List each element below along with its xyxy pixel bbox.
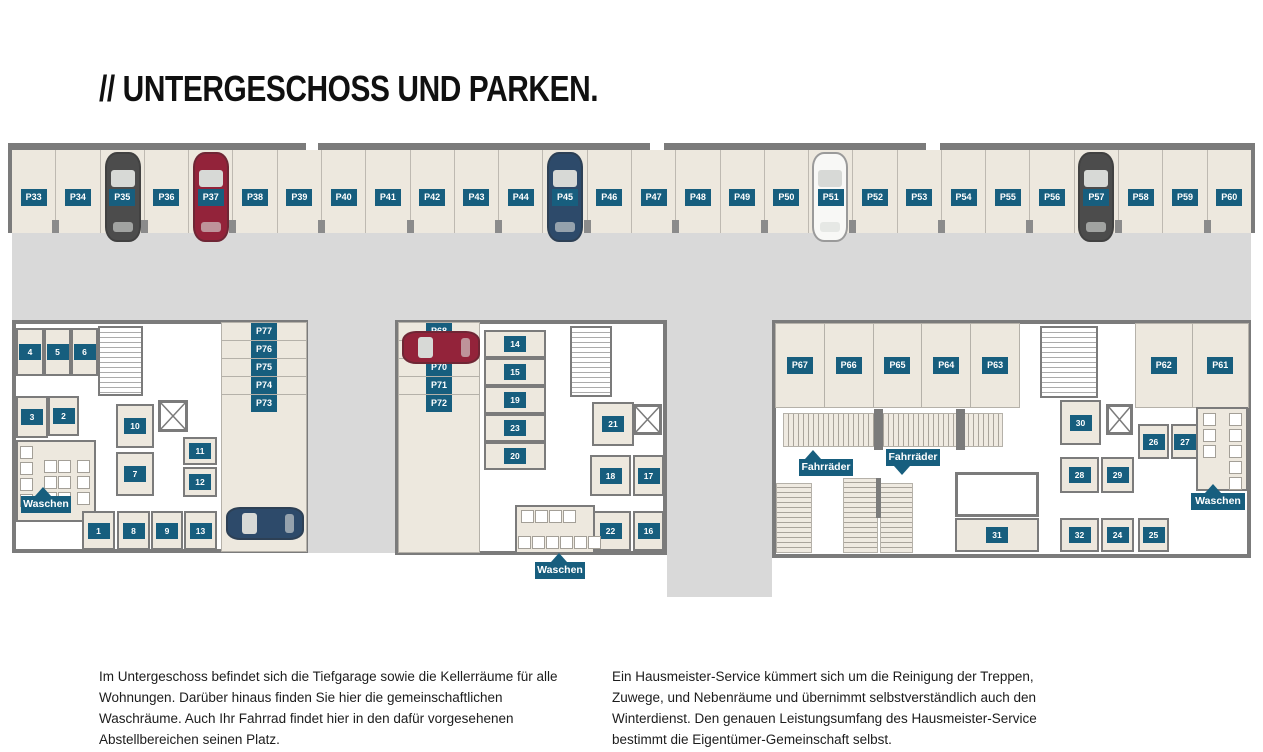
cellar-room: 9 (151, 511, 183, 550)
room-number: 28 (1069, 467, 1091, 483)
wall-notch (306, 143, 318, 150)
parking-spot-label: P75 (251, 359, 277, 376)
room-number: 18 (600, 468, 622, 484)
parking-spot: P38 (233, 150, 277, 233)
washing-machines (518, 536, 599, 549)
room-number: 9 (156, 523, 178, 539)
parking-spot: P33 (12, 150, 56, 233)
cellar-room: 27 (1171, 424, 1199, 459)
parking-spot-label: P73 (251, 395, 277, 412)
room-number: 32 (1069, 527, 1091, 543)
parking-spot: P64 (921, 324, 970, 407)
parking-spot: P72 (399, 394, 479, 412)
parking-spot: P53 (898, 150, 942, 233)
elevator-icon (158, 400, 188, 432)
parking-spot: P39 (278, 150, 322, 233)
cellar-room: 21 (592, 402, 634, 446)
parking-spot: P41 (366, 150, 410, 233)
waschen-callout-left: Waschen (21, 496, 71, 513)
waschen-label: Waschen (537, 564, 583, 576)
driveway-lane-right (667, 320, 772, 597)
parking-spot-label: P47 (641, 189, 667, 206)
car-p73 (226, 507, 304, 540)
column-post (956, 409, 965, 450)
room-number: 6 (74, 344, 96, 360)
parking-spot: P66 (824, 324, 873, 407)
cellar-room: 12 (183, 467, 217, 497)
parking-spot: P67 (776, 324, 824, 407)
arrow-down-icon (894, 466, 910, 475)
parking-spot: P59 (1163, 150, 1207, 233)
car-windshield (1084, 170, 1108, 187)
parking-spot-label: P41 (375, 189, 401, 206)
bike-rack (880, 483, 913, 553)
cellar-room: 23 (484, 414, 546, 442)
cellar-room: 3 (16, 396, 48, 438)
waschen-label: Waschen (23, 498, 69, 510)
parking-spot: P58 (1119, 150, 1163, 233)
cellar-room: 18 (590, 455, 631, 496)
parking-spot: P71 (399, 376, 479, 394)
parking-pair-right: P62 P61 (1135, 323, 1249, 408)
parking-spot: P52 (853, 150, 897, 233)
room-number: 20 (504, 448, 526, 464)
parking-spot-label: P77 (251, 323, 277, 340)
parking-spot: P76 (222, 340, 306, 358)
parking-spot: P48 (676, 150, 720, 233)
parking-spot-label: P35 (109, 189, 135, 206)
parking-spot-label: P38 (242, 189, 268, 206)
parking-spot-label: P60 (1216, 189, 1242, 206)
cellar-room: 26 (1138, 424, 1169, 459)
parking-spot-label: P36 (153, 189, 179, 206)
parking-spot-label: P46 (596, 189, 622, 206)
wall-notch (650, 143, 664, 150)
cellar-room: 8 (117, 511, 150, 550)
washing-machines (1203, 413, 1214, 458)
parking-spot: P62 (1136, 324, 1192, 407)
parking-spot: P40 (322, 150, 366, 233)
staircase (570, 326, 612, 397)
cellar-room: 10 (116, 404, 154, 448)
parking-spot: P47 (632, 150, 676, 233)
parking-spot: P42 (411, 150, 455, 233)
washing-machines (77, 460, 88, 505)
bike-rack (783, 413, 1003, 447)
room-number: 11 (189, 443, 211, 459)
parking-spot-label: P39 (286, 189, 312, 206)
parking-spot: P73 (222, 394, 306, 412)
arrow-up-icon (551, 553, 567, 562)
parking-row-right: P67 P66 P65 P64 P63 (775, 323, 1020, 408)
room-number: 27 (1174, 434, 1196, 450)
utility-room (955, 472, 1039, 517)
cellar-room: 31 (955, 518, 1039, 552)
parking-spot-label: P62 (1151, 357, 1177, 374)
cellar-room: 13 (184, 511, 217, 550)
cellar-room: 32 (1060, 518, 1099, 552)
room-number: 16 (638, 523, 660, 539)
parking-spot-label: P40 (331, 189, 357, 206)
parking-spot-label: P34 (65, 189, 91, 206)
washing-machines (1229, 413, 1240, 490)
parking-spot-label: P57 (1083, 189, 1109, 206)
fahrraeder-label: Fahrräder (801, 461, 850, 473)
page-title: // UNTERGESCHOSS UND PARKEN. (99, 68, 598, 110)
cellar-room: 2 (48, 396, 79, 436)
staircase (98, 326, 143, 396)
cellar-room: 6 (71, 328, 98, 376)
parking-spot: P60 (1208, 150, 1251, 233)
wall-notch (926, 143, 940, 150)
parking-spot: P36 (145, 150, 189, 233)
waschen-label: Waschen (1195, 495, 1241, 507)
arrow-up-icon (35, 487, 51, 496)
room-number: 1 (88, 523, 110, 539)
cellar-room: 29 (1101, 457, 1134, 493)
column-post (874, 409, 883, 450)
car-windshield (818, 170, 842, 187)
parking-spot-label: P58 (1128, 189, 1154, 206)
parking-spot-label: P61 (1207, 357, 1233, 374)
arrow-up-icon (1205, 484, 1221, 493)
car-windshield (242, 513, 257, 534)
car-windshield (199, 170, 223, 187)
parking-spot-label: P59 (1172, 189, 1198, 206)
parking-spot-label: P74 (251, 377, 277, 394)
parking-spot-label: P45 (552, 189, 578, 206)
driveway-main (12, 233, 1251, 320)
cellar-room: 11 (183, 437, 217, 465)
fahrraeder-callout-right: Fahrräder (886, 449, 940, 466)
parking-spot-label: P33 (21, 189, 47, 206)
room-number: 26 (1143, 434, 1165, 450)
parking-spot-label: P64 (933, 357, 959, 374)
parking-spot-label: P52 (862, 189, 888, 206)
parking-spot-label: P71 (426, 377, 452, 394)
room-number: 14 (504, 336, 526, 352)
parking-spot-label: P55 (995, 189, 1021, 206)
parking-spot-label: P49 (729, 189, 755, 206)
parking-spot: P61 (1192, 324, 1249, 407)
parking-spot: P55 (986, 150, 1030, 233)
brochure-page: // UNTERGESCHOSS UND PARKEN. P33 P34 P35… (0, 0, 1263, 752)
parking-spot: P54 (942, 150, 986, 233)
car-windshield (553, 170, 577, 187)
cellar-room: 28 (1060, 457, 1099, 493)
room-number: 31 (986, 527, 1008, 543)
parking-spot-label: P66 (836, 357, 862, 374)
cellar-room: 14 (484, 330, 546, 358)
parking-spot: P34 (56, 150, 100, 233)
parking-spot-label: P43 (463, 189, 489, 206)
parking-spot-label: P48 (685, 189, 711, 206)
room-number: 13 (190, 523, 212, 539)
parking-spot-label: P65 (884, 357, 910, 374)
cellar-room: 5 (44, 328, 71, 376)
description-left: Im Untergeschoss befindet sich die Tiefg… (99, 666, 561, 750)
parking-spot-label: P54 (951, 189, 977, 206)
parking-spot-label: P53 (906, 189, 932, 206)
cellar-room: 15 (484, 358, 546, 386)
parking-spot: P46 (588, 150, 632, 233)
bike-rack (843, 478, 878, 553)
cellar-room: 4 (16, 328, 44, 376)
room-number: 17 (638, 468, 660, 484)
room-number: 3 (21, 409, 43, 425)
parking-spot: P75 (222, 358, 306, 376)
cellar-room: 20 (484, 442, 546, 470)
parking-spot-label: P44 (508, 189, 534, 206)
waschen-callout-right: Waschen (1191, 493, 1245, 510)
cellar-room: 25 (1138, 518, 1169, 552)
room-number: 10 (124, 418, 146, 434)
room-number: 7 (124, 466, 146, 482)
room-number: 5 (47, 344, 69, 360)
cellar-room: 1 (82, 511, 115, 550)
washing-machines (521, 510, 574, 523)
parking-spot: P63 (970, 324, 1019, 407)
cellar-room: 17 (633, 455, 664, 496)
driveway-lane-left (308, 320, 395, 553)
room-number: 23 (504, 420, 526, 436)
parking-spot: P49 (721, 150, 765, 233)
room-number: 4 (19, 344, 41, 360)
parking-spot: P43 (455, 150, 499, 233)
arrow-up-icon (805, 450, 821, 459)
parking-spot-label: P63 (982, 357, 1008, 374)
room-number: 25 (1143, 527, 1165, 543)
parking-spot-label: P51 (818, 189, 844, 206)
elevator-icon (1106, 404, 1133, 435)
fahrraeder-label: Fahrräder (888, 451, 937, 463)
parking-spot: P44 (499, 150, 543, 233)
parking-spot-label: P72 (426, 395, 452, 412)
cellar-room: 16 (633, 511, 664, 551)
description-right: Ein Hausmeister-Service kümmert sich um … (612, 666, 1064, 750)
room-number: 19 (504, 392, 526, 408)
parking-spot-label: P67 (787, 357, 813, 374)
room-number: 15 (504, 364, 526, 380)
room-number: 22 (600, 523, 622, 539)
car-p68 (402, 331, 480, 364)
elevator-icon (633, 404, 662, 435)
staircase (1040, 326, 1098, 398)
parking-spot-label: P76 (251, 341, 277, 358)
car-windshield (418, 337, 433, 358)
cellar-room: 30 (1060, 400, 1101, 445)
car-windshield (111, 170, 135, 187)
room-number: 29 (1107, 467, 1129, 483)
room-number: 24 (1107, 527, 1129, 543)
room-number: 8 (123, 523, 145, 539)
room-number: 2 (53, 408, 75, 424)
parking-spot-label: P37 (198, 189, 224, 206)
room-number: 12 (189, 474, 211, 490)
bike-rack (776, 483, 812, 553)
room-number: 30 (1070, 415, 1092, 431)
parking-spot-label: P56 (1039, 189, 1065, 206)
cellar-room: 19 (484, 386, 546, 414)
parking-spot: P56 (1030, 150, 1074, 233)
room-number: 21 (602, 416, 624, 432)
waschen-callout-middle: Waschen (535, 562, 585, 579)
cellar-room: 24 (1101, 518, 1134, 552)
column-post (876, 478, 881, 518)
parking-spot-label: P50 (773, 189, 799, 206)
parking-spot: P50 (765, 150, 809, 233)
parking-spot-label: P42 (419, 189, 445, 206)
parking-spot: P77 (222, 323, 306, 340)
fahrraeder-callout-left: Fahrräder (799, 459, 853, 476)
parking-spot: P65 (873, 324, 922, 407)
cellar-room: 7 (116, 452, 154, 496)
parking-spot: P74 (222, 376, 306, 394)
